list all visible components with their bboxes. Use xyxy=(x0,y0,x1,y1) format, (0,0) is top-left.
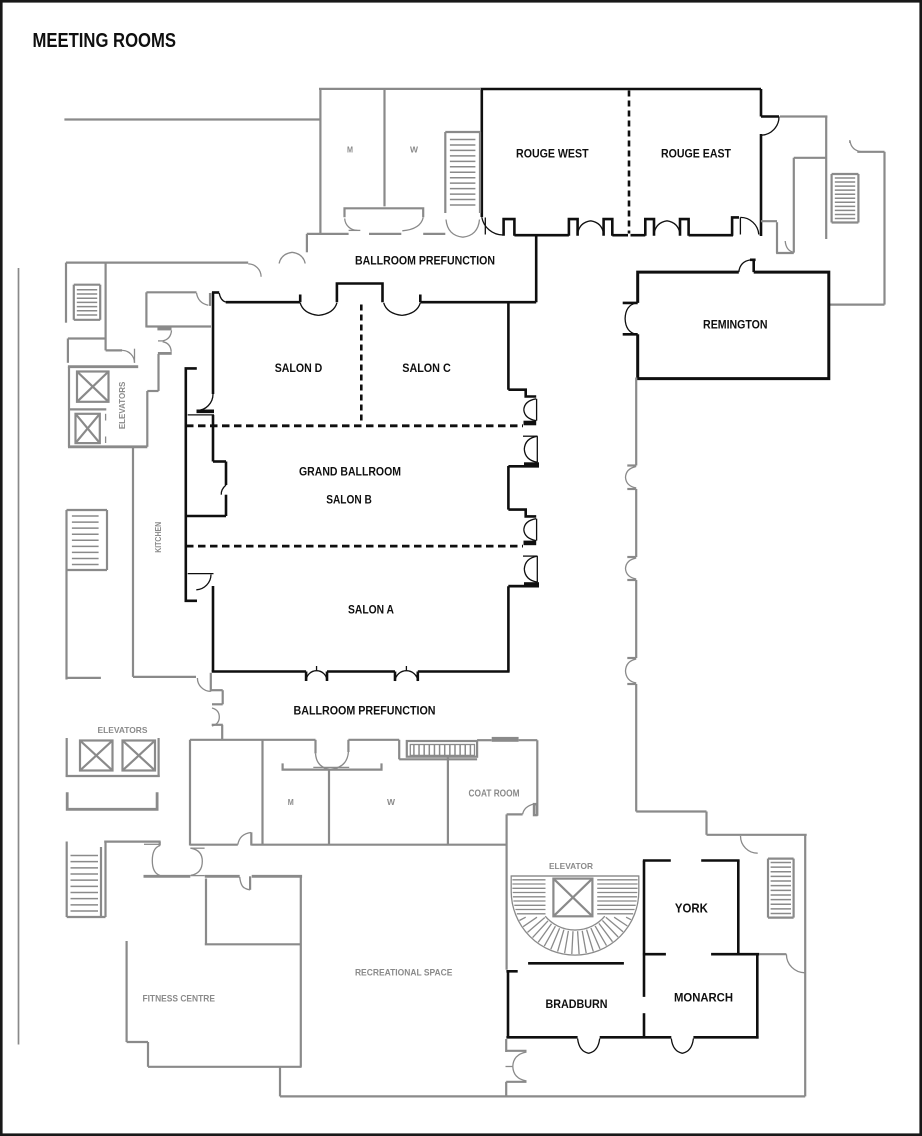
svg-text:SALON D: SALON D xyxy=(275,361,323,375)
svg-text:SALON B: SALON B xyxy=(326,493,372,507)
svg-text:ELEVATORS: ELEVATORS xyxy=(117,381,127,429)
svg-text:ELEVATORS: ELEVATORS xyxy=(98,725,148,735)
svg-text:ELEVATOR: ELEVATOR xyxy=(549,861,593,871)
svg-text:BRADBURN: BRADBURN xyxy=(546,997,608,1011)
svg-text:ROUGE WEST: ROUGE WEST xyxy=(516,147,589,161)
svg-text:BALLROOM PREFUNCTION: BALLROOM PREFUNCTION xyxy=(355,254,495,268)
svg-text:MEETING ROOMS: MEETING ROOMS xyxy=(33,29,177,52)
svg-text:SALON A: SALON A xyxy=(348,603,394,617)
svg-text:KITCHEN: KITCHEN xyxy=(153,522,163,553)
svg-text:COAT ROOM: COAT ROOM xyxy=(469,789,520,800)
svg-text:FITNESS CENTRE: FITNESS CENTRE xyxy=(142,994,215,1005)
svg-text:SALON C: SALON C xyxy=(402,361,451,375)
svg-text:M: M xyxy=(288,798,294,807)
svg-text:M: M xyxy=(347,146,353,155)
svg-text:GRAND BALLROOM: GRAND BALLROOM xyxy=(299,465,401,479)
svg-text:YORK: YORK xyxy=(675,901,709,916)
svg-text:MONARCH: MONARCH xyxy=(674,991,733,1005)
svg-text:REMINGTON: REMINGTON xyxy=(703,318,768,332)
svg-text:BALLROOM PREFUNCTION: BALLROOM PREFUNCTION xyxy=(294,704,436,718)
svg-text:W: W xyxy=(387,798,395,807)
svg-text:ROUGE EAST: ROUGE EAST xyxy=(661,147,731,161)
svg-text:RECREATIONAL SPACE: RECREATIONAL SPACE xyxy=(355,968,453,979)
svg-text:W: W xyxy=(410,146,418,155)
